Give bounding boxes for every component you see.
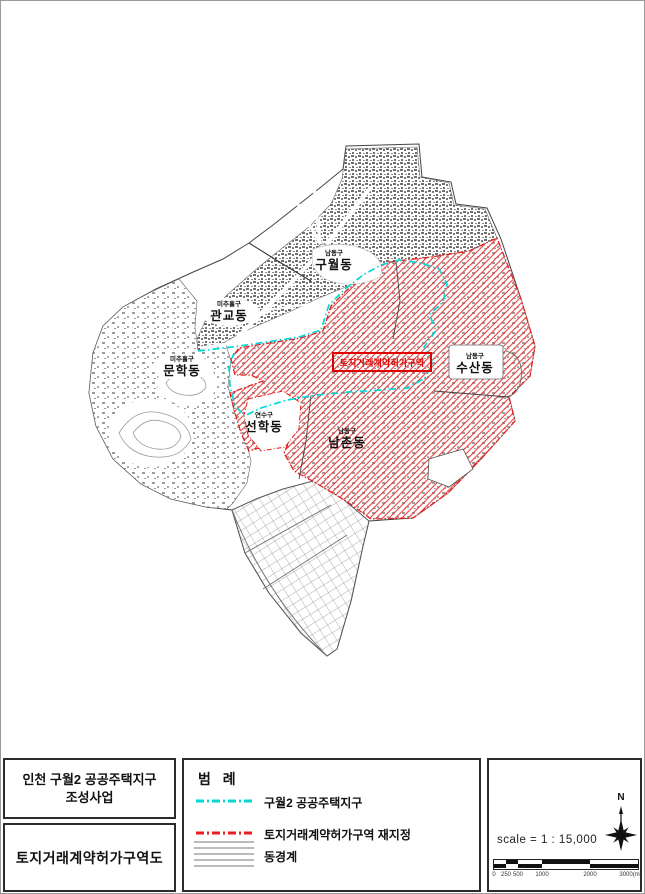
label-namchon-gu: 남동구 (338, 426, 356, 435)
red-dashdot-swatch (196, 828, 254, 838)
map-canvas: 토지거래계약허가구역 남동구 구월동 미추홀구 관교동 미추홀구 문학동 남동구… (1, 1, 645, 757)
scale-tick-250: 250 (501, 872, 511, 878)
district-map: 토지거래계약허가구역 남동구 구월동 미추홀구 관교동 미추홀구 문학동 남동구… (1, 1, 645, 757)
zone-label-text: 토지거래계약허가구역 (340, 357, 425, 368)
legend-item-dong-boundary: 동경계 (264, 848, 297, 865)
scale-bar (493, 859, 639, 870)
map-title-box: 토지거래계약허가구역도 (3, 823, 176, 892)
map-sheet: 토지거래계약허가구역 남동구 구월동 미추홀구 관교동 미추홀구 문학동 남동구… (0, 0, 645, 894)
label-namchon: 남촌동 (328, 435, 366, 450)
scale-tick-2000: 2000 (583, 872, 596, 878)
scale-tick-1000: 1000 (535, 872, 548, 878)
legend-item-permission-zone: 토지거래계약허가구역 재지정 (264, 826, 411, 843)
label-guwol-gu: 남동구 (325, 248, 343, 257)
urban-area-south-grid (232, 481, 369, 656)
scale-text: scale = 1 : 15,000 (497, 834, 597, 846)
boundary-lines-swatch (194, 841, 254, 869)
label-gwangyo-gu: 미추홀구 (217, 299, 241, 308)
label-munhak-gu: 미추홀구 (170, 354, 194, 363)
label-gwangyo: 관교동 (210, 308, 248, 323)
map-title: 토지거래계약허가구역도 (16, 848, 163, 868)
scale-tick-0: 0 (492, 872, 495, 878)
scale-box: N scale = 1 : 15,000 0 250 500 1000 2000… (487, 758, 642, 892)
compass-star-icon (601, 803, 641, 855)
project-title-line1: 인천 구월2 공공주택지구 (22, 771, 156, 789)
label-seonhak-gu: 연수구 (255, 410, 273, 419)
project-title-box: 인천 구월2 공공주택지구 조성사업 (3, 758, 176, 819)
legend-box: 범 례 구월2 공공주택지구 토지거래계약허가구역 재지정 동경계 (182, 758, 481, 892)
legend-item-housing-district: 구월2 공공주택지구 (264, 794, 362, 811)
project-title-line2: 조성사업 (66, 789, 114, 807)
scale-tick-500: 500 (513, 872, 523, 878)
label-seonhak: 선학동 (245, 419, 283, 434)
label-guwol: 구월동 (315, 257, 353, 272)
scale-tick-3000: 3000(m) (619, 872, 641, 878)
cyan-dashdot-swatch (196, 796, 254, 806)
legend-title: 범 례 (198, 769, 240, 789)
north-label: N (601, 792, 641, 803)
label-munhak: 문학동 (163, 363, 201, 378)
label-susan: 수산동 (456, 360, 494, 375)
label-susan-gu: 남동구 (466, 351, 484, 360)
north-arrow: N (601, 792, 641, 856)
